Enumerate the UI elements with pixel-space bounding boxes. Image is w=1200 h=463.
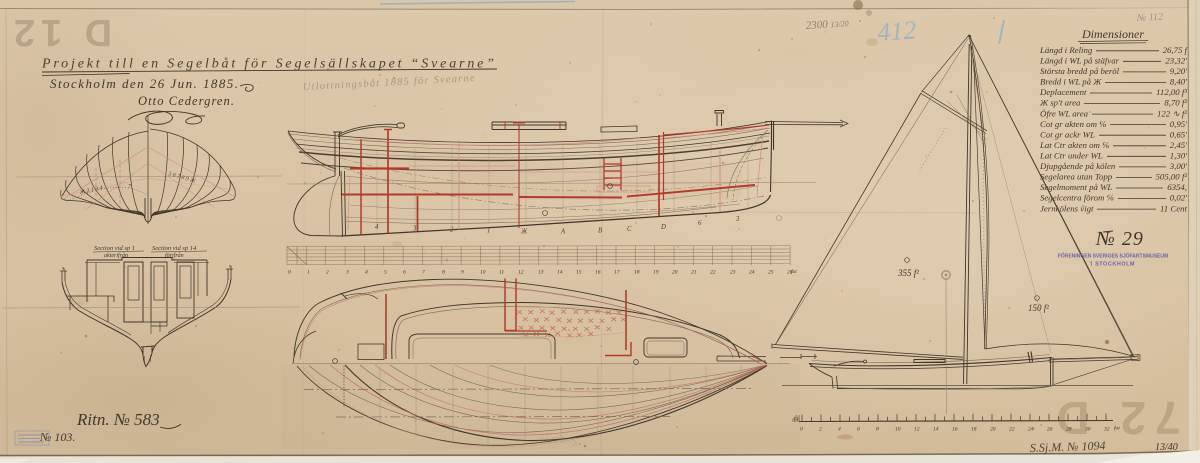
svg-text:7: 7 [422,270,425,276]
svg-text:13/40: 13/40 [1155,442,1178,453]
svg-text:6: 6 [403,270,406,276]
svg-text:Svearne: Svearne [536,434,578,449]
svg-text:3,00': 3,00' [1169,161,1187,171]
svg-text:B: B [598,228,602,235]
svg-text:Cot gr ackr WL: Cot gr ackr WL [1040,129,1095,139]
svg-text:6: 6 [698,220,702,227]
svg-text:Segelmoment på WL: Segelmoment på WL [1040,182,1112,192]
svg-text:Lat Ctr akten om ℅: Lat Ctr akten om ℅ [1039,140,1109,150]
svg-text:Segelarea utan Topp: Segelarea utan Topp [1040,172,1113,182]
svg-text:D 12: D 12 [8,11,112,53]
svg-text:122 ∿ f²: 122 ∿ f² [1157,108,1187,118]
svg-text:0,65': 0,65' [1170,129,1187,139]
svg-text:19: 19 [653,270,659,276]
svg-text:Dimensioner: Dimensioner [1081,27,1144,41]
svg-text:Cot gr akten om ℅: Cot gr akten om ℅ [1040,119,1106,129]
svg-text:412: 412 [876,15,917,47]
svg-text:0: 0 [800,427,803,433]
svg-text:Längd i WL på stäfvar: Längd i WL på stäfvar [1039,56,1120,66]
svg-text:2: 2 [326,270,329,276]
svg-text:6354,: 6354, [1167,182,1187,192]
svg-text:S.Sj.M. № 1094: S.Sj.M. № 1094 [1030,438,1106,455]
svg-text:C: C [627,226,632,233]
svg-text:8,70 f²: 8,70 f² [1164,98,1187,108]
svg-text:21: 21 [691,270,697,276]
svg-text:Ж sp't area: Ж sp't area [1039,98,1081,108]
svg-text:12: 12 [518,270,524,276]
svg-text:20: 20 [990,427,996,433]
svg-text:Otto Cedergren.: Otto Cedergren. [138,94,234,108]
svg-text:4: 4 [838,426,841,433]
svg-text:1: 1 [307,270,310,276]
svg-text:№ 112: № 112 [1136,12,1164,24]
svg-text:Bredd i WL på Ж: Bredd i WL på Ж [1040,77,1102,87]
svg-text:0: 0 [288,270,291,276]
svg-text:150 f²: 150 f² [1028,303,1049,313]
svg-text:24: 24 [1028,426,1034,433]
svg-text:12: 12 [914,427,920,433]
svg-text:Öfre WL area: Öfre WL area [1040,108,1089,118]
svg-text:6: 6 [857,427,860,433]
svg-text:18: 18 [634,270,640,276]
svg-text:3: 3 [735,216,740,223]
svg-text:8: 8 [442,270,445,276]
svg-text:355 f²: 355 f² [897,268,919,278]
svg-text:16: 16 [595,270,601,276]
svg-text:2: 2 [450,227,454,234]
svg-text:4: 4 [365,269,368,276]
svg-text:fot: fot [1114,425,1120,432]
svg-text:28: 28 [1066,427,1072,433]
svg-text:3: 3 [412,226,417,233]
svg-text:Jernkölens vigt: Jernkölens vigt [1040,203,1094,213]
svg-text:72 D: 72 D [1047,392,1180,444]
svg-text:Ritn. № 583: Ritn. № 583 [76,410,160,429]
svg-text:23,32': 23,32' [1165,56,1187,66]
svg-text:13: 13 [538,270,544,276]
svg-text:A: A [560,229,566,236]
svg-text:0,02': 0,02' [1170,193,1187,203]
svg-text:112,00 f³: 112,00 f³ [1156,87,1187,97]
svg-text:15: 15 [576,270,582,276]
svg-text:3: 3 [345,270,349,276]
svg-text:16: 16 [952,427,958,433]
svg-text:Segelcentra förom ℅: Segelcentra förom ℅ [1040,193,1114,203]
svg-text:9,20': 9,20' [1170,66,1187,76]
svg-text:18: 18 [971,427,977,433]
svg-text:23: 23 [730,270,736,276]
svg-text:I STOCKHOLM: I STOCKHOLM [1091,262,1135,268]
svg-text:Lat Ctr under WL: Lat Ctr under WL [1039,151,1103,161]
svg-text:1: 1 [487,228,490,235]
svg-text:24: 24 [749,269,755,276]
svg-text:Section vid sp 1: Section vid sp 1 [94,245,135,252]
svg-text:2: 2 [819,427,822,433]
svg-text:32: 32 [1103,427,1110,433]
svg-text:2,45': 2,45' [1170,140,1187,150]
svg-text:D: D [660,224,666,231]
svg-text:9: 9 [461,270,464,276]
svg-text:FÖRENINGEN SVERIGES SJÖFARTSMU: FÖRENINGEN SVERIGES SJÖFARTSMUSEUM [1058,253,1168,260]
svg-text:17: 17 [614,270,620,276]
svg-text:Längd i Reling: Längd i Reling [1039,45,1093,55]
svg-text:Deplacement: Deplacement [1039,87,1087,97]
svg-text:Största bredd på beröl: Största bredd på beröl [1040,66,1120,76]
svg-text:14: 14 [557,269,563,276]
svg-text:Section vid sp 14: Section vid sp 14 [152,245,197,252]
svg-text:20: 20 [672,270,678,276]
svg-text:8,40': 8,40' [1170,77,1187,87]
svg-text:5: 5 [384,270,387,276]
svg-text:505,00 f²: 505,00 f² [1156,172,1188,182]
svg-text:10: 10 [480,270,486,276]
svg-text:14: 14 [933,426,939,433]
svg-text:26: 26 [1047,427,1053,433]
svg-text:Djupgående på kölen: Djupgående på kölen [1039,161,1116,171]
svg-text:№ 103.: № 103. [39,430,75,444]
svg-text:8: 8 [876,427,879,433]
svg-text:№ 29: № 29 [1095,228,1144,250]
svg-text:11 Cent: 11 Cent [1160,203,1188,213]
svg-text:22: 22 [710,270,716,276]
svg-text:26,75 f: 26,75 f [1163,45,1189,55]
svg-text:22: 22 [1009,427,1015,433]
svg-text:25: 25 [768,270,774,276]
svg-text:0,95': 0,95' [1170,119,1187,129]
svg-text:1,30': 1,30' [1170,151,1187,161]
svg-text:10: 10 [895,427,901,433]
svg-text:Ж: Ж [520,229,528,236]
svg-text:fot: fot [791,268,797,275]
svg-text:4: 4 [375,224,379,231]
svg-text:30: 30 [1084,427,1091,433]
svg-text:11: 11 [499,270,504,276]
